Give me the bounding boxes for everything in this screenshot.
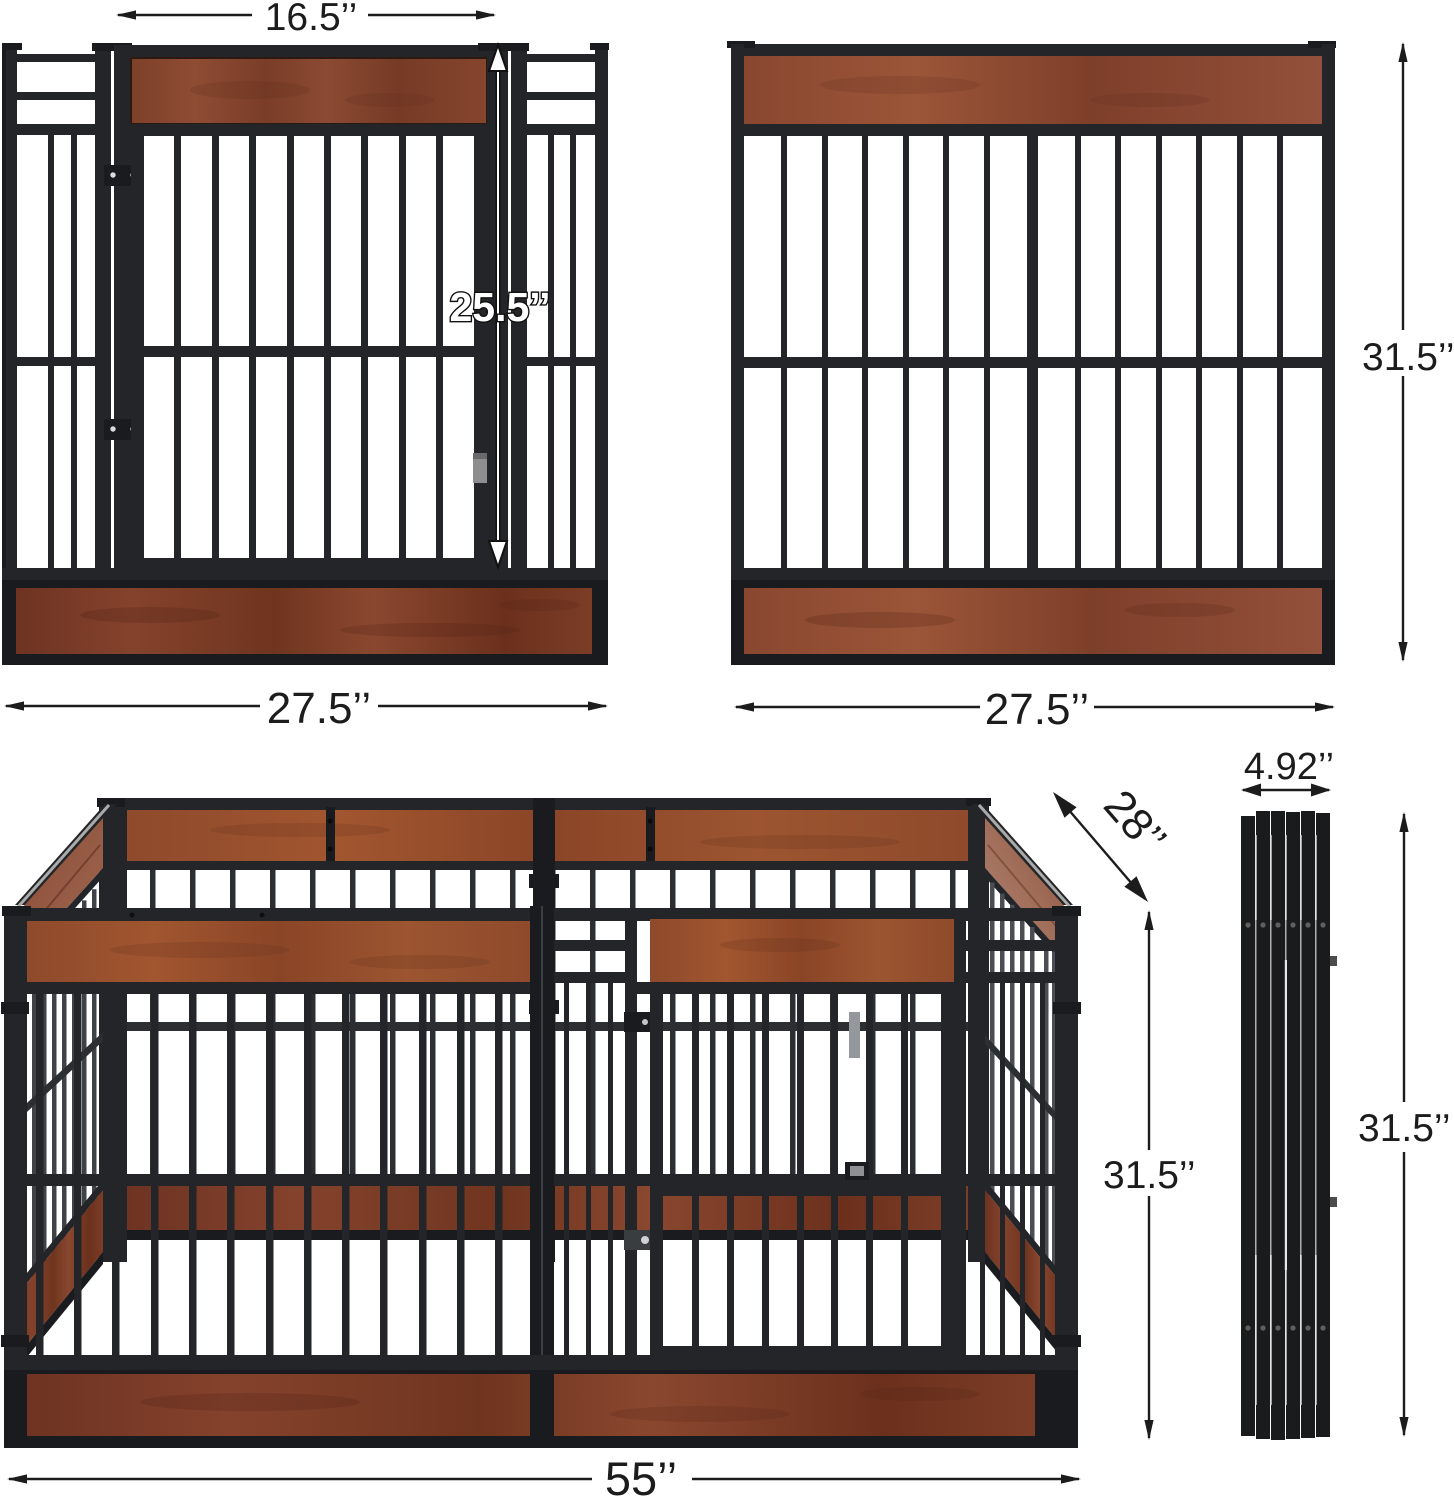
svg-text:55’’: 55’’ [605, 1452, 677, 1500]
svg-text:31.5’’: 31.5’’ [1358, 1107, 1451, 1150]
svg-text:25.5’’: 25.5’’ [449, 284, 550, 330]
svg-text:27.5’’: 27.5’’ [267, 684, 371, 733]
svg-text:4.92’’: 4.92’’ [1244, 746, 1334, 788]
svg-text:16.5’’: 16.5’’ [265, 0, 358, 39]
svg-text:31.5’’: 31.5’’ [1103, 1154, 1196, 1197]
svg-text:31.5’’: 31.5’’ [1362, 336, 1454, 379]
svg-text:27.5’’: 27.5’’ [985, 685, 1089, 734]
